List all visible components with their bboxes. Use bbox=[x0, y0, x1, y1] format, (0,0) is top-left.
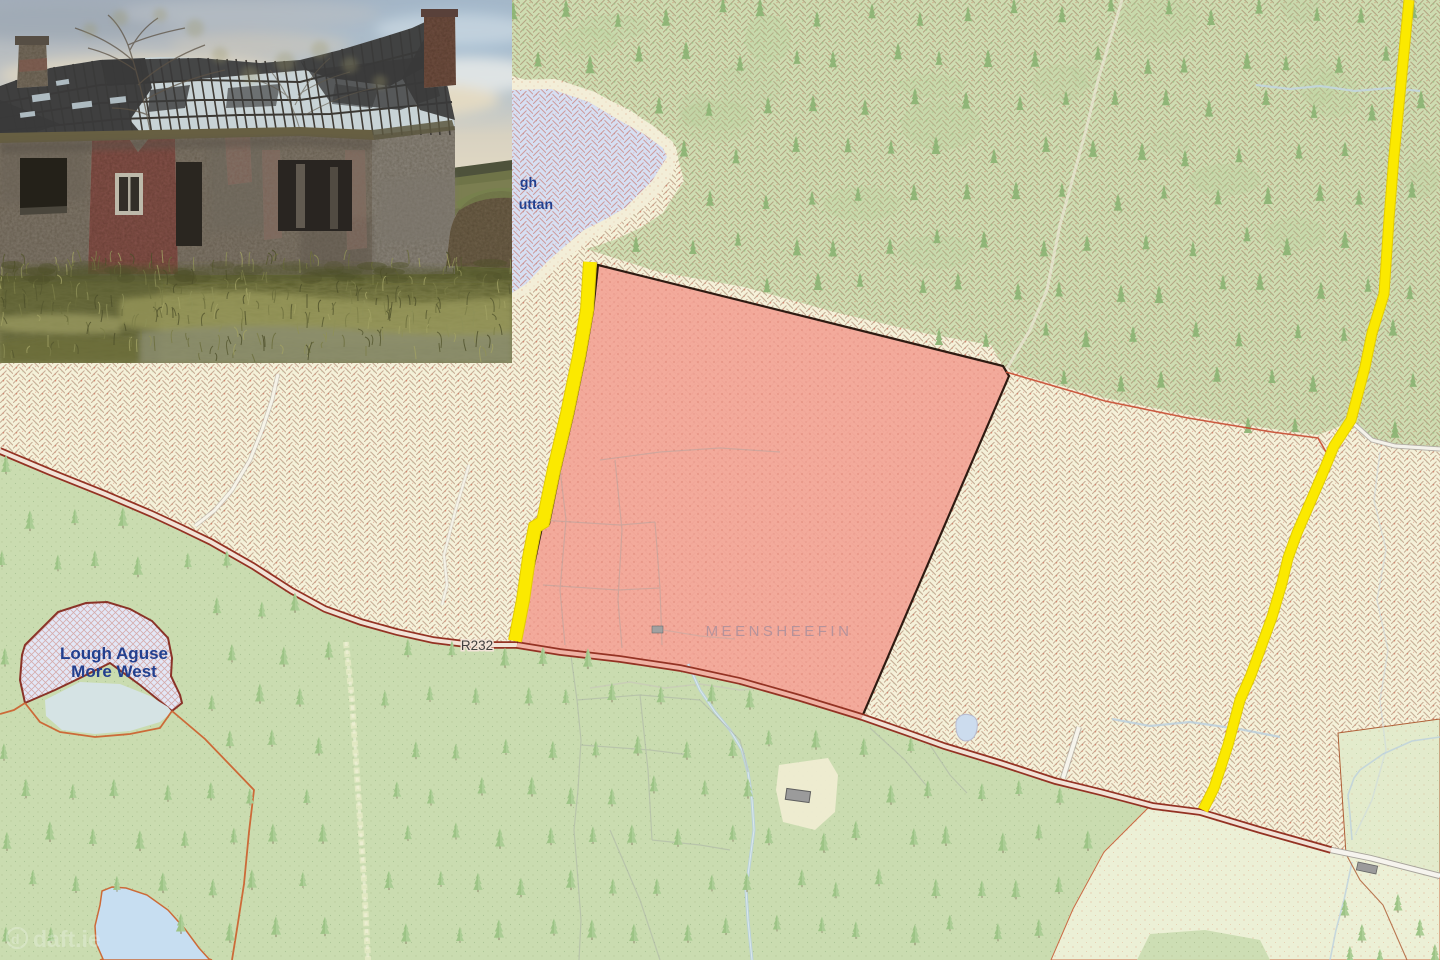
svg-text:R232: R232 bbox=[461, 638, 493, 653]
svg-text:gh: gh bbox=[520, 174, 537, 190]
svg-text:MEENSHEEFIN: MEENSHEEFIN bbox=[706, 623, 853, 640]
svg-text:Lough Aguse: Lough Aguse bbox=[60, 644, 168, 663]
svg-text:More West: More West bbox=[71, 662, 157, 681]
svg-text:daft.ie: daft.ie bbox=[33, 926, 101, 952]
svg-text:uttan: uttan bbox=[519, 196, 553, 212]
svg-text:d: d bbox=[11, 931, 20, 947]
